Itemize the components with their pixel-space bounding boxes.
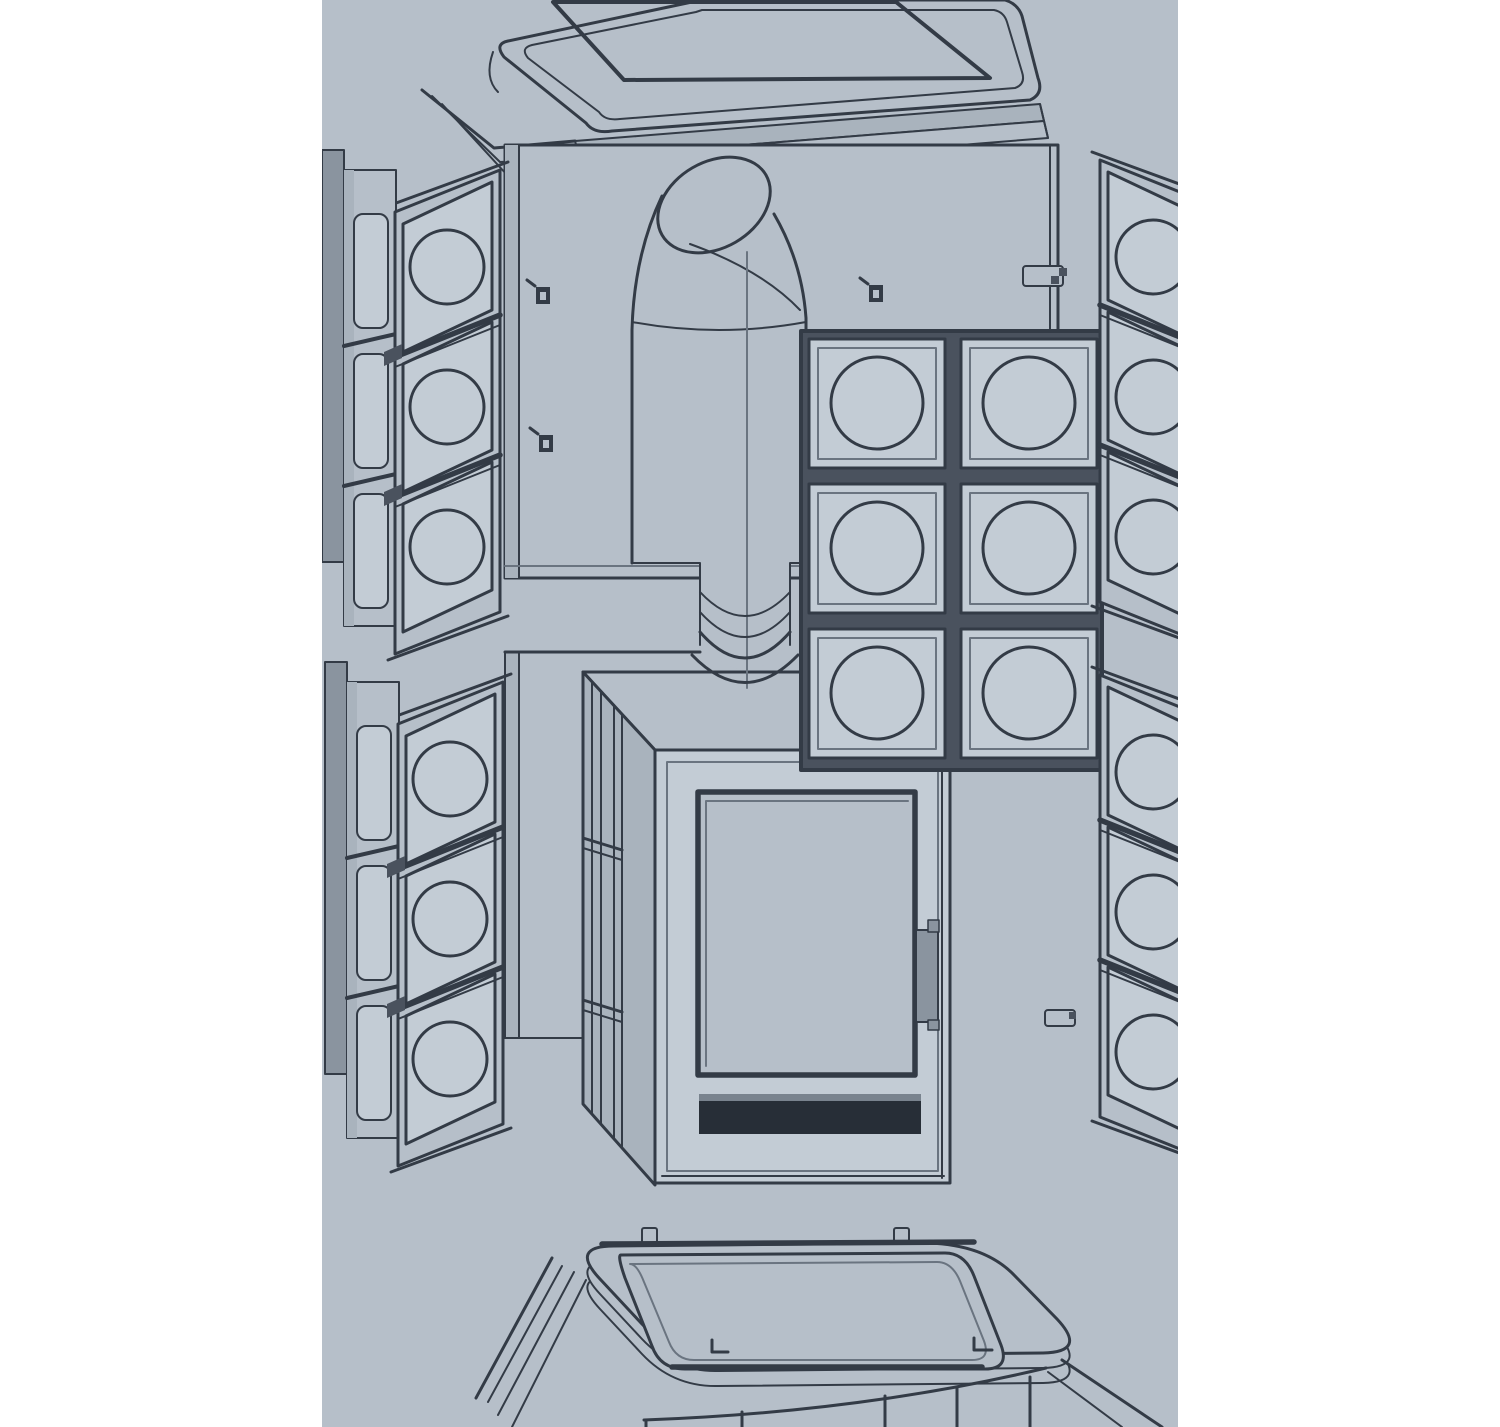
base-left-contour-2 [512, 1280, 586, 1427]
column-mid-tile [354, 354, 388, 468]
left-upper-tile-column [322, 150, 508, 660]
firebox-side-panel [583, 672, 655, 1185]
column-mid-shade [344, 170, 354, 626]
left-lower-tile-column [325, 662, 511, 1172]
door-handle[interactable] [916, 930, 938, 1022]
firebox-door-window[interactable] [698, 792, 915, 1075]
right-column-peg [1023, 266, 1067, 286]
stove-exploded-diagram [322, 0, 1178, 1427]
top-cover-corner-line-1 [422, 90, 575, 148]
column-back-strip [322, 150, 344, 562]
door-handle-bottom-pin [928, 1020, 939, 1030]
right-upper-tile-column [1092, 140, 1178, 650]
air-slot [699, 1101, 921, 1134]
base-right-contour [1048, 1372, 1122, 1427]
column-mid-tile [354, 214, 388, 328]
right-lower-tile-column [1092, 655, 1178, 1165]
diagram-canvas [322, 0, 1178, 1427]
door-handle-top-pin [928, 920, 939, 932]
grid-tile [809, 484, 945, 613]
right-column-hook [1045, 1010, 1076, 1026]
pipe-body-fill [632, 196, 806, 670]
rear-upper-panel-left-band [505, 145, 519, 578]
grid-tile [961, 339, 1097, 468]
column-mid-tile [354, 494, 388, 608]
rear-tile-grid [801, 331, 1102, 770]
base-plinth [476, 1228, 1162, 1427]
page [0, 0, 1500, 1427]
base-recess [620, 1253, 1004, 1369]
base-left-silhouette [476, 1258, 552, 1398]
grid-tile [809, 629, 945, 758]
rear-lower-panel-edge [505, 652, 519, 1038]
top-cover-corner-arc [489, 52, 498, 92]
base-ring-back-edge [602, 1242, 974, 1244]
grid-tile [961, 629, 1097, 758]
base-left-contours [488, 1266, 574, 1415]
grid-tile [961, 484, 1097, 613]
grid-tile [809, 339, 945, 468]
